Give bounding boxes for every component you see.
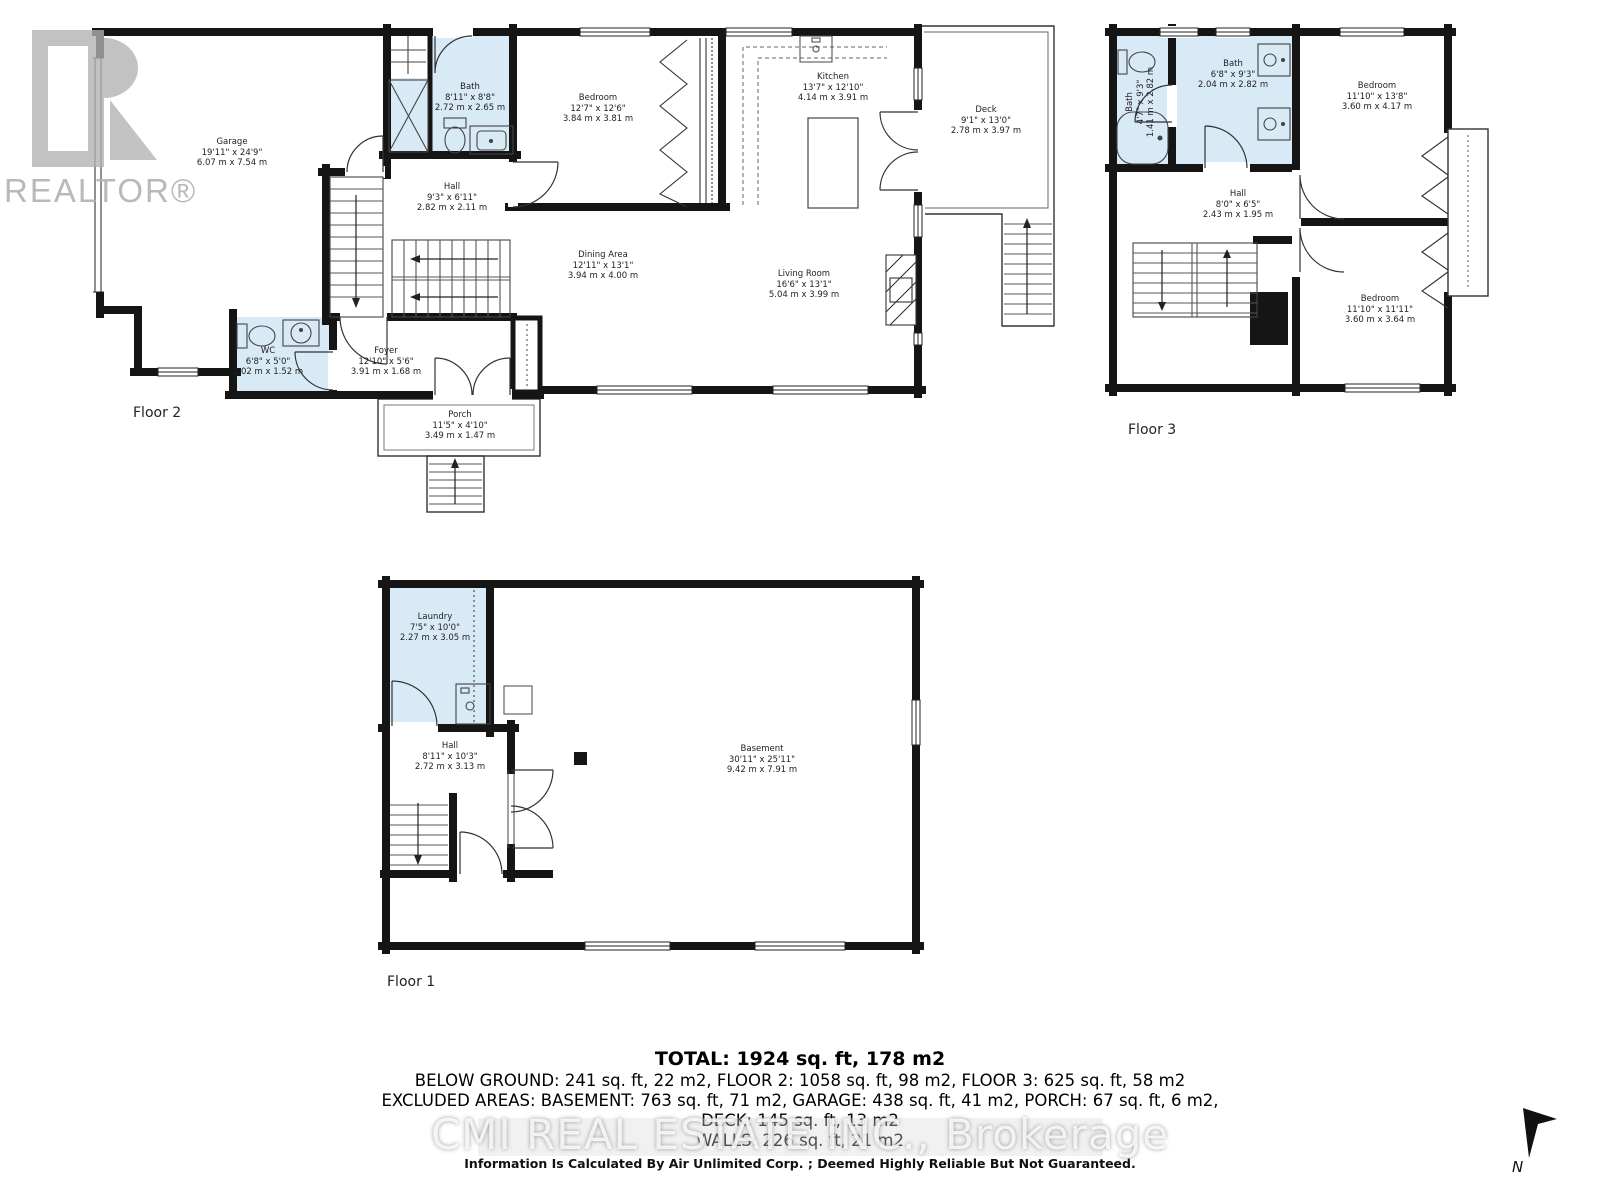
floor2-fireplace [886, 255, 916, 325]
floor3-stairs [1133, 243, 1257, 317]
room-label-kitchen: Kitchen 13'7" x 12'10" 4.14 m x 3.91 m [798, 72, 868, 104]
bifold-doors [660, 40, 687, 207]
floor3-right-closet [1448, 129, 1488, 296]
room-label-bath-f2: Bath 8'11" x 8'8" 2.72 m x 2.65 m [435, 82, 505, 114]
floor1-stairs [390, 803, 448, 865]
floorplan-page: { "branding": { "logo_text": "REALTOR®",… [0, 0, 1600, 1200]
room-label-bedroom1-f3: Bedroom 11'10" x 13'8" 3.60 m x 4.17 m [1342, 81, 1412, 113]
floor1-label: Floor 1 [387, 974, 435, 990]
floor1-openings [390, 700, 922, 952]
furnace [504, 686, 532, 714]
summary-line-floors: BELOW GROUND: 241 sq. ft, 22 m2, FLOOR 2… [0, 1072, 1600, 1090]
room-label-garage: Garage 19'11" x 24'9" 6.07 m x 7.54 m [197, 137, 267, 169]
room-label-hall-f1: Hall 8'11" x 10'3" 2.72 m x 3.13 m [415, 741, 485, 773]
room-label-basement: Basement 30'11" x 25'11" 9.42 m x 7.91 m [727, 744, 797, 776]
floor2-deck-outline [918, 26, 1054, 326]
floor3-chimney-block [1250, 292, 1288, 345]
brokerage-watermark: CMI REAL ESTATE INC., Brokerage [0, 1110, 1600, 1159]
floor2-kitchen [743, 36, 887, 208]
north-label: N [1512, 1158, 1523, 1176]
room-label-wc: WC 6'8" x 5'0" 2.02 m x 1.52 m [233, 346, 303, 378]
support-post [574, 752, 587, 765]
room-label-bath1-f3: Bath 4'7" x 9'3" 1.41 m x 2.82 m [1125, 67, 1157, 137]
floor3-label: Floor 3 [1128, 422, 1176, 438]
room-label-hall-f3: Hall 8'0" x 6'5" 2.43 m x 1.95 m [1203, 189, 1273, 221]
room-label-bedroom2-f3: Bedroom 11'10" x 11'11" 3.60 m x 3.64 m [1345, 294, 1415, 326]
room-label-dining: Dining Area 12'11" x 13'1" 3.94 m x 4.00… [568, 250, 638, 282]
realtor-logo-icon [32, 30, 157, 167]
realtor-logo-text: REALTOR® [4, 172, 197, 210]
room-label-bedroom-f2: Bedroom 12'7" x 12'6" 3.84 m x 3.81 m [563, 93, 633, 125]
floor1-windows [585, 700, 920, 950]
sliding-door [700, 38, 706, 203]
room-label-hall-f2: Hall 9'3" x 6'11" 2.82 m x 2.11 m [417, 182, 487, 214]
room-label-porch: Porch 11'5" x 4'10" 3.49 m x 1.47 m [425, 410, 495, 442]
closet-shelves [390, 36, 426, 74]
floor2-foyer-closet [513, 318, 540, 392]
deck-stairs-treads [1004, 224, 1052, 314]
floor2-label: Floor 2 [133, 405, 181, 421]
room-label-bath2-f3: Bath 6'8" x 9'3" 2.04 m x 2.82 m [1198, 59, 1268, 91]
room-label-foyer: Foyer 12'10" x 5'6" 3.91 m x 1.68 m [351, 346, 421, 378]
total-area: TOTAL: 1924 sq. ft, 178 m2 [0, 1050, 1600, 1069]
room-label-living: Living Room 16'6" x 13'1" 5.04 m x 3.99 … [769, 269, 839, 301]
room-label-laundry: Laundry 7'5" x 10'0" 2.27 m x 3.05 m [400, 612, 470, 644]
floor3-plan [1109, 26, 1488, 394]
summary-line-excluded: EXCLUDED AREAS: BASEMENT: 763 sq. ft, 71… [0, 1092, 1600, 1110]
floor2-bedroom-closet [660, 38, 712, 207]
floorplan-canvas [0, 0, 1600, 1200]
room-label-deck: Deck 9'1" x 13'0" 2.78 m x 3.97 m [951, 105, 1021, 137]
kitchen-island [808, 118, 858, 208]
